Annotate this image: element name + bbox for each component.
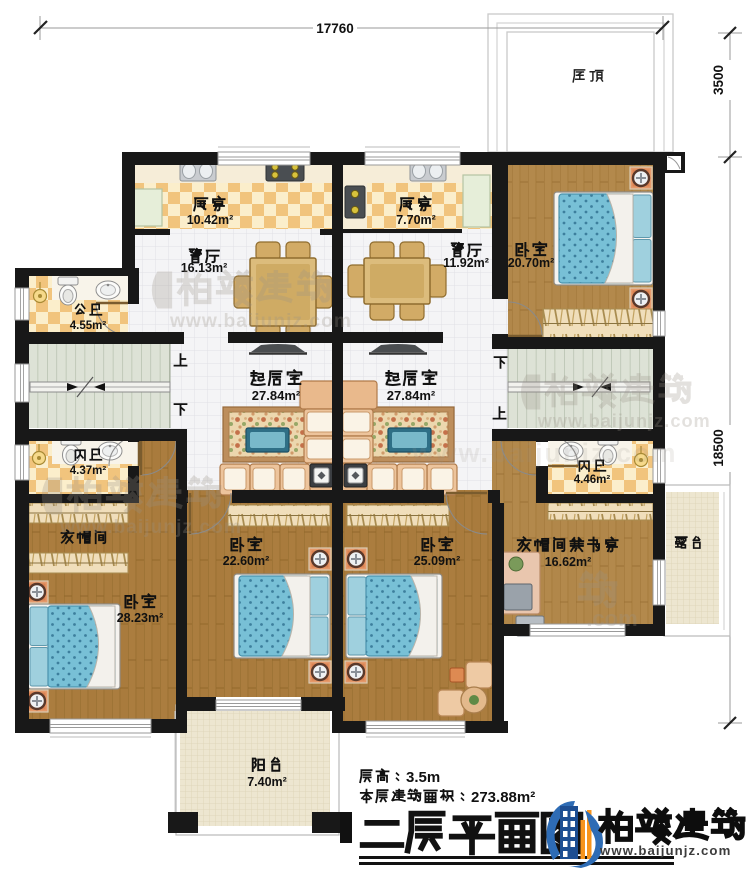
- svg-text:18500: 18500: [711, 429, 726, 467]
- svg-text:27.84m²: 27.84m²: [252, 388, 301, 403]
- svg-text:11.92m²: 11.92m²: [443, 256, 489, 270]
- svg-text:7.40m²: 7.40m²: [247, 775, 287, 789]
- svg-text:25.09m²: 25.09m²: [414, 554, 461, 568]
- svg-text:3.5m: 3.5m: [406, 769, 440, 786]
- svg-text:28.23m²: 28.23m²: [117, 611, 164, 625]
- svg-text:22.60m²: 22.60m²: [223, 554, 270, 568]
- svg-text:273.88m²: 273.88m²: [471, 789, 535, 806]
- svg-text:4.46m²: 4.46m²: [574, 474, 611, 486]
- svg-text:16.62m²: 16.62m²: [545, 555, 592, 569]
- svg-text:3500: 3500: [711, 65, 726, 95]
- svg-text:www.baijunjz.com: www.baijunjz.com: [169, 311, 352, 332]
- svg-text:www.baijunjz.com: www.baijunjz.com: [537, 411, 711, 431]
- svg-text:27.84m²: 27.84m²: [387, 388, 436, 403]
- svg-text:4.55m²: 4.55m²: [70, 320, 107, 332]
- svg-text:.com: .com: [586, 606, 637, 631]
- svg-text:17760: 17760: [316, 21, 354, 36]
- svg-text:4.37m²: 4.37m²: [70, 465, 107, 477]
- svg-text:20.70m²: 20.70m²: [508, 256, 555, 270]
- svg-text:10.42m²: 10.42m²: [187, 213, 234, 227]
- svg-text:www.baijunjz.com: www.baijunjz.com: [411, 438, 677, 468]
- svg-text:www.baijunjz.com: www.baijunjz.com: [599, 843, 731, 858]
- svg-text:www.baijunjz.com: www.baijunjz.com: [59, 517, 242, 538]
- svg-text:7.70m²: 7.70m²: [396, 213, 436, 227]
